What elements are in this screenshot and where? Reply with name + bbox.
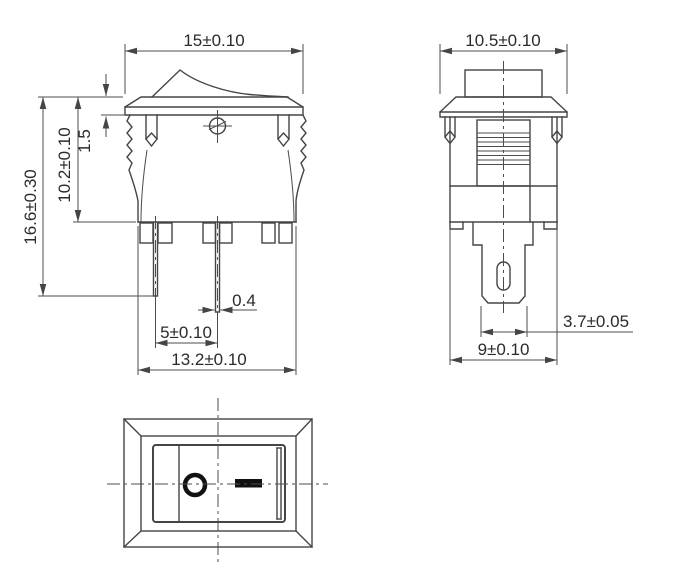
front-rocker-profile bbox=[152, 70, 288, 97]
side-view: 10.5±0.10 3.7±0.05 9±0.10 bbox=[440, 31, 633, 365]
dim-terminal-thickness-label: 0.4 bbox=[232, 291, 256, 310]
dim-total-height-label: 16.6±0.30 bbox=[21, 169, 40, 245]
dim-flange-width-label: 15±0.10 bbox=[183, 31, 244, 50]
technical-drawing: 15±0.10 16.6±0.30 10.2±0.10 1.5 0.4 5±0.… bbox=[0, 0, 690, 580]
dim-body-depth-label: 9±0.10 bbox=[478, 340, 530, 359]
dim-terminal-pitch-label: 5±0.10 bbox=[160, 323, 212, 342]
front-right-wall bbox=[296, 115, 306, 222]
front-left-clip-chevron bbox=[146, 133, 157, 139]
front-right-wall-inner bbox=[288, 150, 294, 222]
terminal-base bbox=[220, 223, 233, 243]
front-flange bbox=[125, 97, 303, 115]
off-symbol-ring bbox=[185, 475, 205, 495]
front-left-clip bbox=[146, 115, 157, 146]
front-right-clip bbox=[278, 115, 289, 146]
top-corner-bevel bbox=[296, 419, 312, 436]
front-left-wall bbox=[127, 115, 138, 222]
terminal-base bbox=[158, 223, 172, 243]
dim-body-width-label: 13.2±0.10 bbox=[171, 350, 247, 369]
on-symbol-bar bbox=[235, 479, 262, 488]
top-corner-bevel bbox=[124, 419, 141, 436]
side-bottom-step-right bbox=[544, 222, 557, 229]
front-left-wall-inner bbox=[141, 150, 147, 222]
dim-flange-depth-label: 10.5±0.10 bbox=[465, 31, 541, 50]
front-right-clip-chevron bbox=[278, 133, 289, 139]
dim-body-height-label: 10.2±0.10 bbox=[55, 127, 74, 203]
side-bottom-step-left bbox=[450, 222, 463, 229]
terminal-base bbox=[262, 223, 275, 243]
dim-terminal-width-label: 3.7±0.05 bbox=[563, 312, 629, 331]
dim-flange-thickness-label: 1.5 bbox=[75, 129, 94, 153]
top-corner-bevel bbox=[124, 531, 141, 547]
top-view bbox=[107, 398, 328, 566]
terminal-base bbox=[203, 223, 216, 243]
terminal-base bbox=[279, 223, 292, 243]
terminal-base bbox=[140, 223, 153, 243]
drawing-canvas: 15±0.10 16.6±0.30 10.2±0.10 1.5 0.4 5±0.… bbox=[0, 0, 690, 580]
top-corner-bevel bbox=[296, 531, 312, 547]
front-view: 15±0.10 16.6±0.30 10.2±0.10 1.5 0.4 5±0.… bbox=[21, 31, 306, 375]
